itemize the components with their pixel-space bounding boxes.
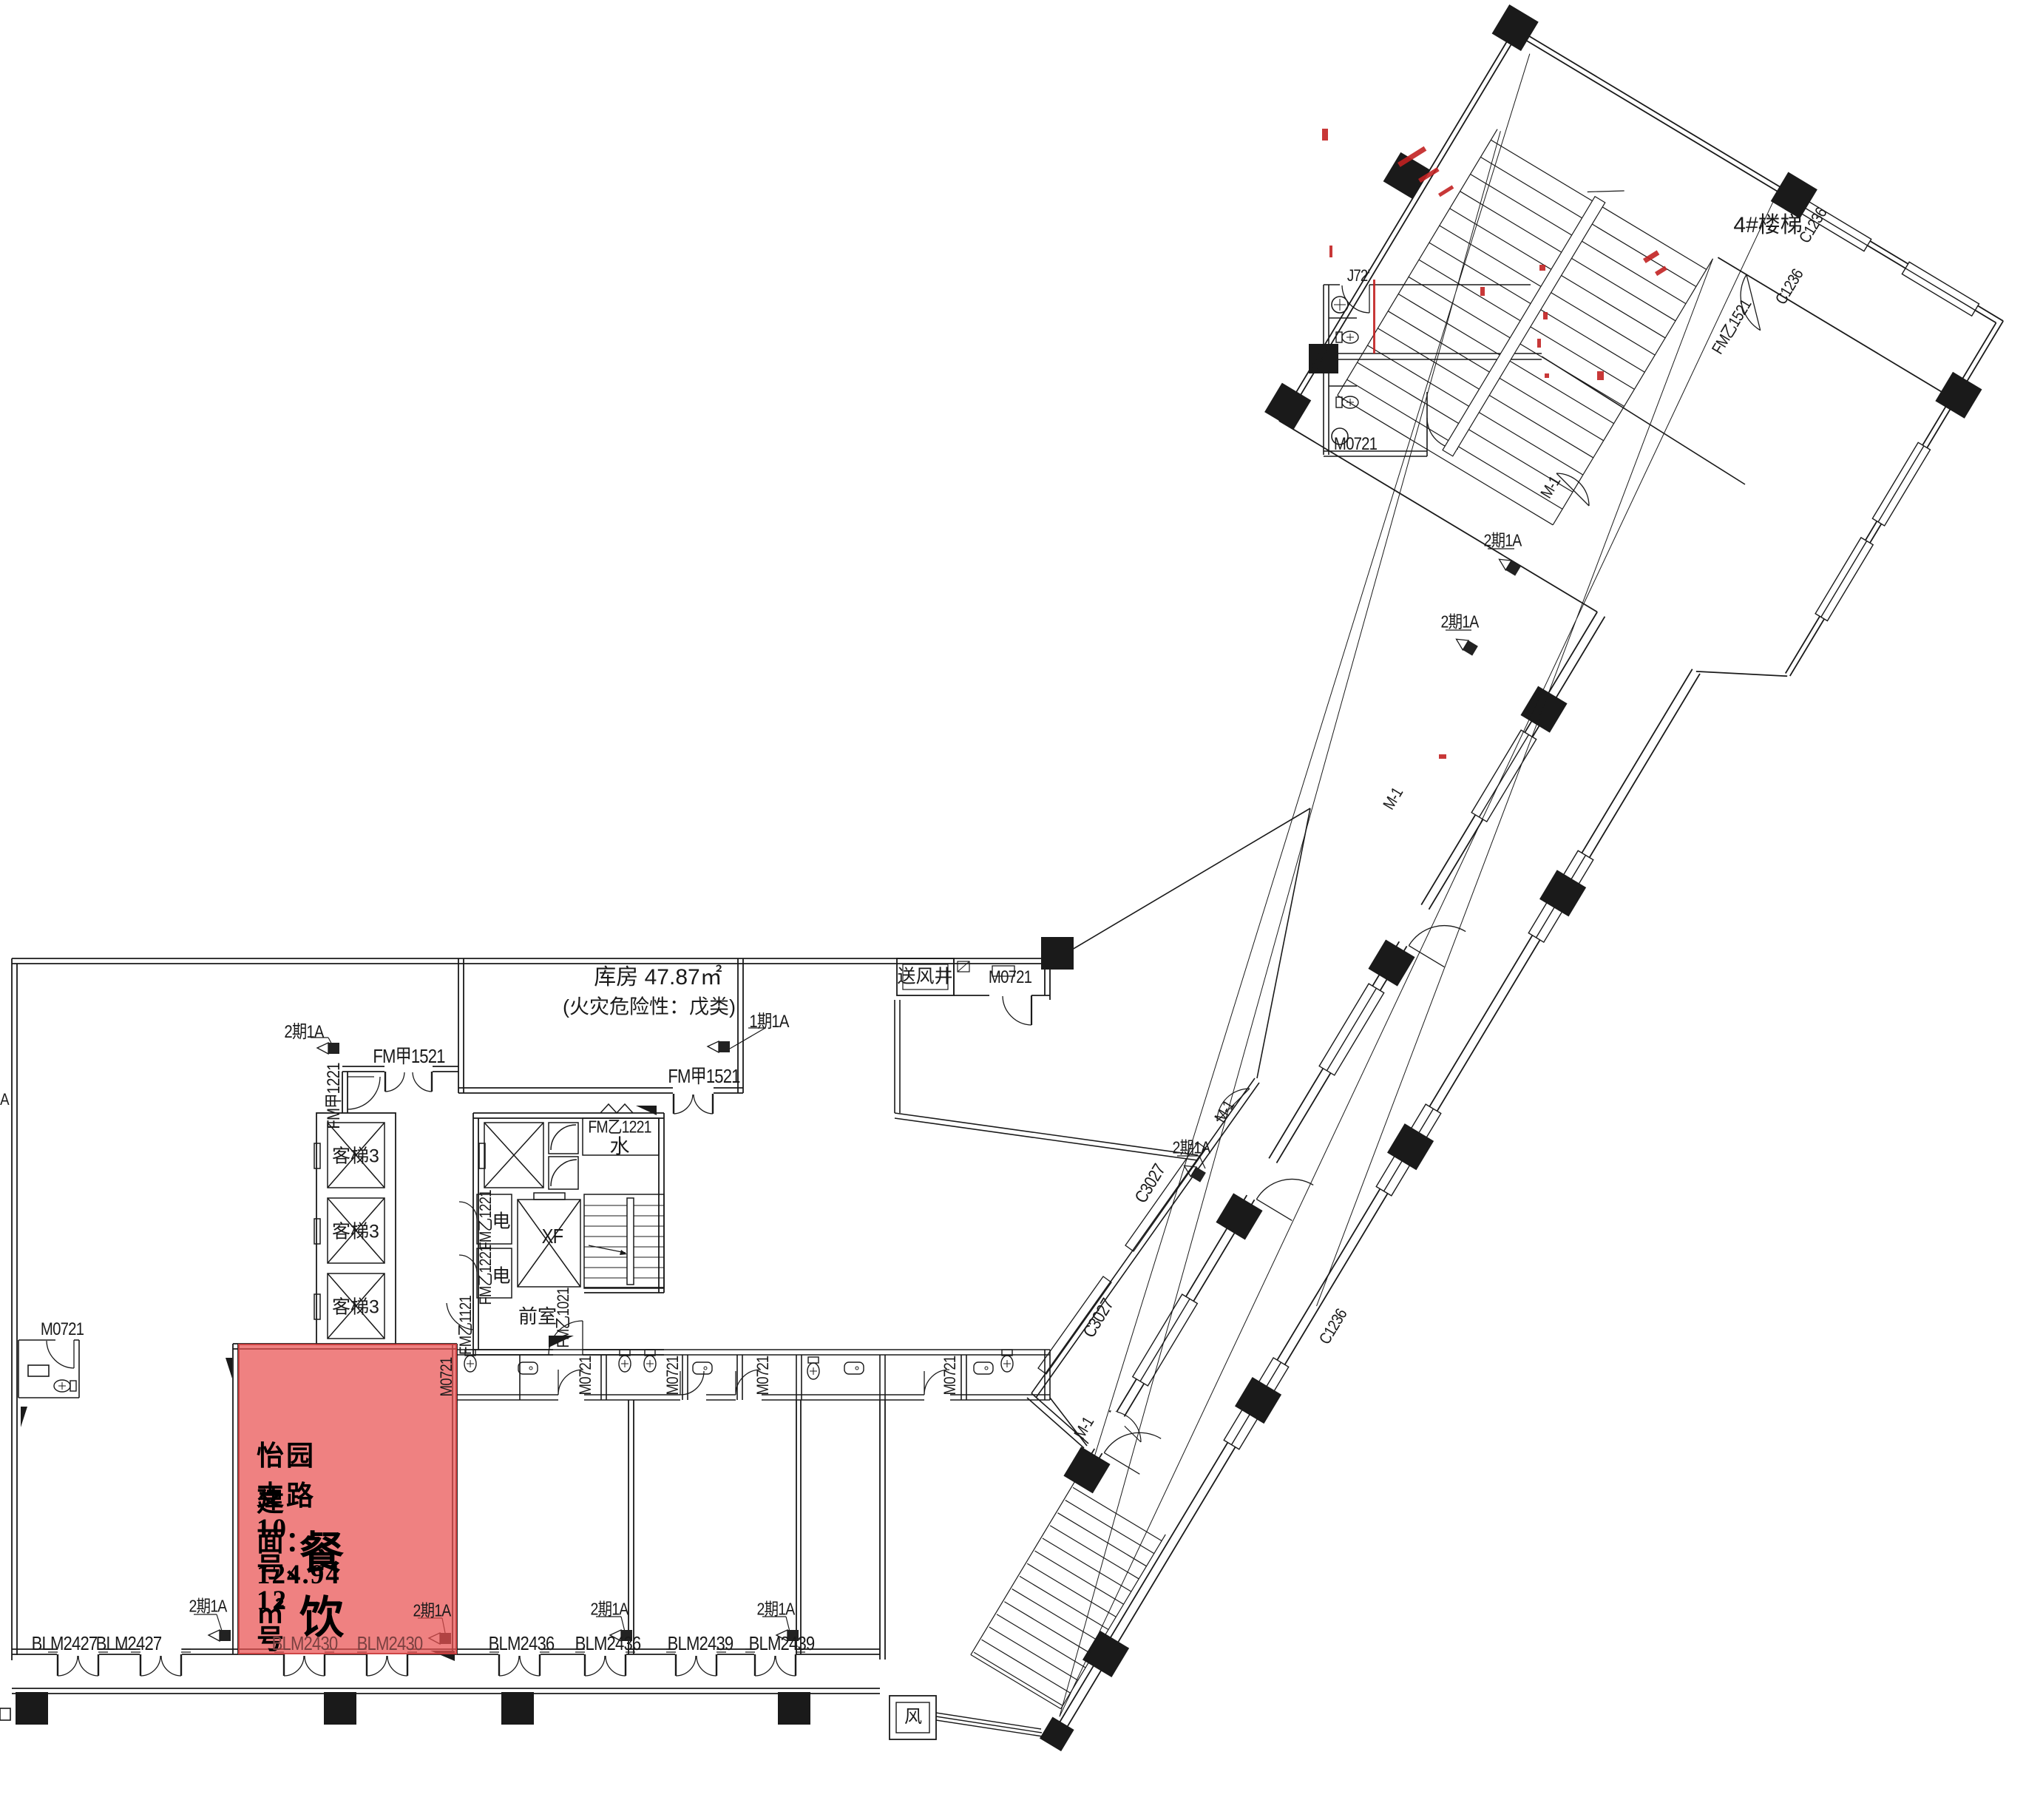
- plan-label: J72': [1347, 268, 1369, 284]
- unit-use: 餐饮: [299, 1518, 351, 1646]
- plan-label: 2期1A: [1441, 614, 1479, 631]
- plan-label: M0721: [1334, 436, 1377, 453]
- plan-label: 2期1A: [1173, 1140, 1210, 1157]
- plan-label: 4#楼梯: [1733, 214, 1802, 237]
- plan-label: FM甲1521: [668, 1066, 739, 1086]
- plan-label: XF: [542, 1226, 563, 1247]
- plan-label: 电: [492, 1213, 510, 1231]
- plan-label: 2期1A: [1484, 532, 1522, 549]
- plan-label: FM乙1121: [458, 1296, 474, 1355]
- plan-label: M0721: [577, 1356, 594, 1396]
- plan-label: 电: [492, 1268, 510, 1286]
- angled-wing: [605, 0, 2027, 1796]
- plan-label: 2期1A: [284, 1024, 323, 1041]
- plan-label: 2期1A: [591, 1601, 629, 1618]
- colonnade: [0, 1688, 1043, 1739]
- plan-label: FM甲1221: [325, 1063, 343, 1129]
- plan-label: A: [0, 1092, 9, 1108]
- plan-label: 客梯3: [332, 1148, 379, 1166]
- plan-label: 1期1A: [749, 1013, 788, 1031]
- plan-label: 客梯3: [332, 1299, 379, 1317]
- plan-label: 2期1A: [189, 1598, 227, 1615]
- plan-label: BLM2439: [749, 1634, 815, 1653]
- plan-label: 送风井: [897, 968, 952, 987]
- plan-label: FM乙1221: [588, 1119, 651, 1136]
- plan-label: BLM2436: [575, 1634, 641, 1653]
- floor-plan: 怡园支路10号、12号 建面：124.94㎡ 餐饮 库房 47.87㎡(火灾危险…: [0, 0, 2043, 1820]
- plan-label: BLM2430: [357, 1634, 423, 1653]
- plan-label: BLM2439: [668, 1634, 733, 1653]
- plan-label: FM甲1521: [373, 1046, 444, 1066]
- plan-label: BLM2427: [96, 1634, 162, 1653]
- plan-label: 库房 47.87㎡: [594, 967, 722, 989]
- plan-label: M0721: [665, 1356, 681, 1396]
- plan-label: (火灾危险性：戊类): [563, 998, 736, 1018]
- plan-label: FM乙1021: [555, 1288, 572, 1347]
- plan-label: 水: [610, 1137, 630, 1157]
- connector-zone: [895, 808, 1310, 1448]
- plan-label: M0721: [41, 1321, 84, 1339]
- plan-label: 前室: [518, 1307, 557, 1326]
- plan-label: M0721: [942, 1356, 958, 1396]
- plan-label: BLM2430: [272, 1634, 338, 1653]
- plan-label: BLM2436: [489, 1634, 555, 1653]
- plan-label: 风: [904, 1708, 922, 1726]
- plan-label: 2期1A: [757, 1601, 795, 1618]
- plan-label: M0721: [989, 969, 1031, 987]
- plan-label: 客梯3: [332, 1223, 379, 1242]
- plan-label: M0721: [438, 1358, 455, 1397]
- plan-label: 2期1A: [413, 1603, 451, 1620]
- plan-label: BLM2427: [32, 1634, 98, 1653]
- plan-label: M0721: [755, 1356, 771, 1396]
